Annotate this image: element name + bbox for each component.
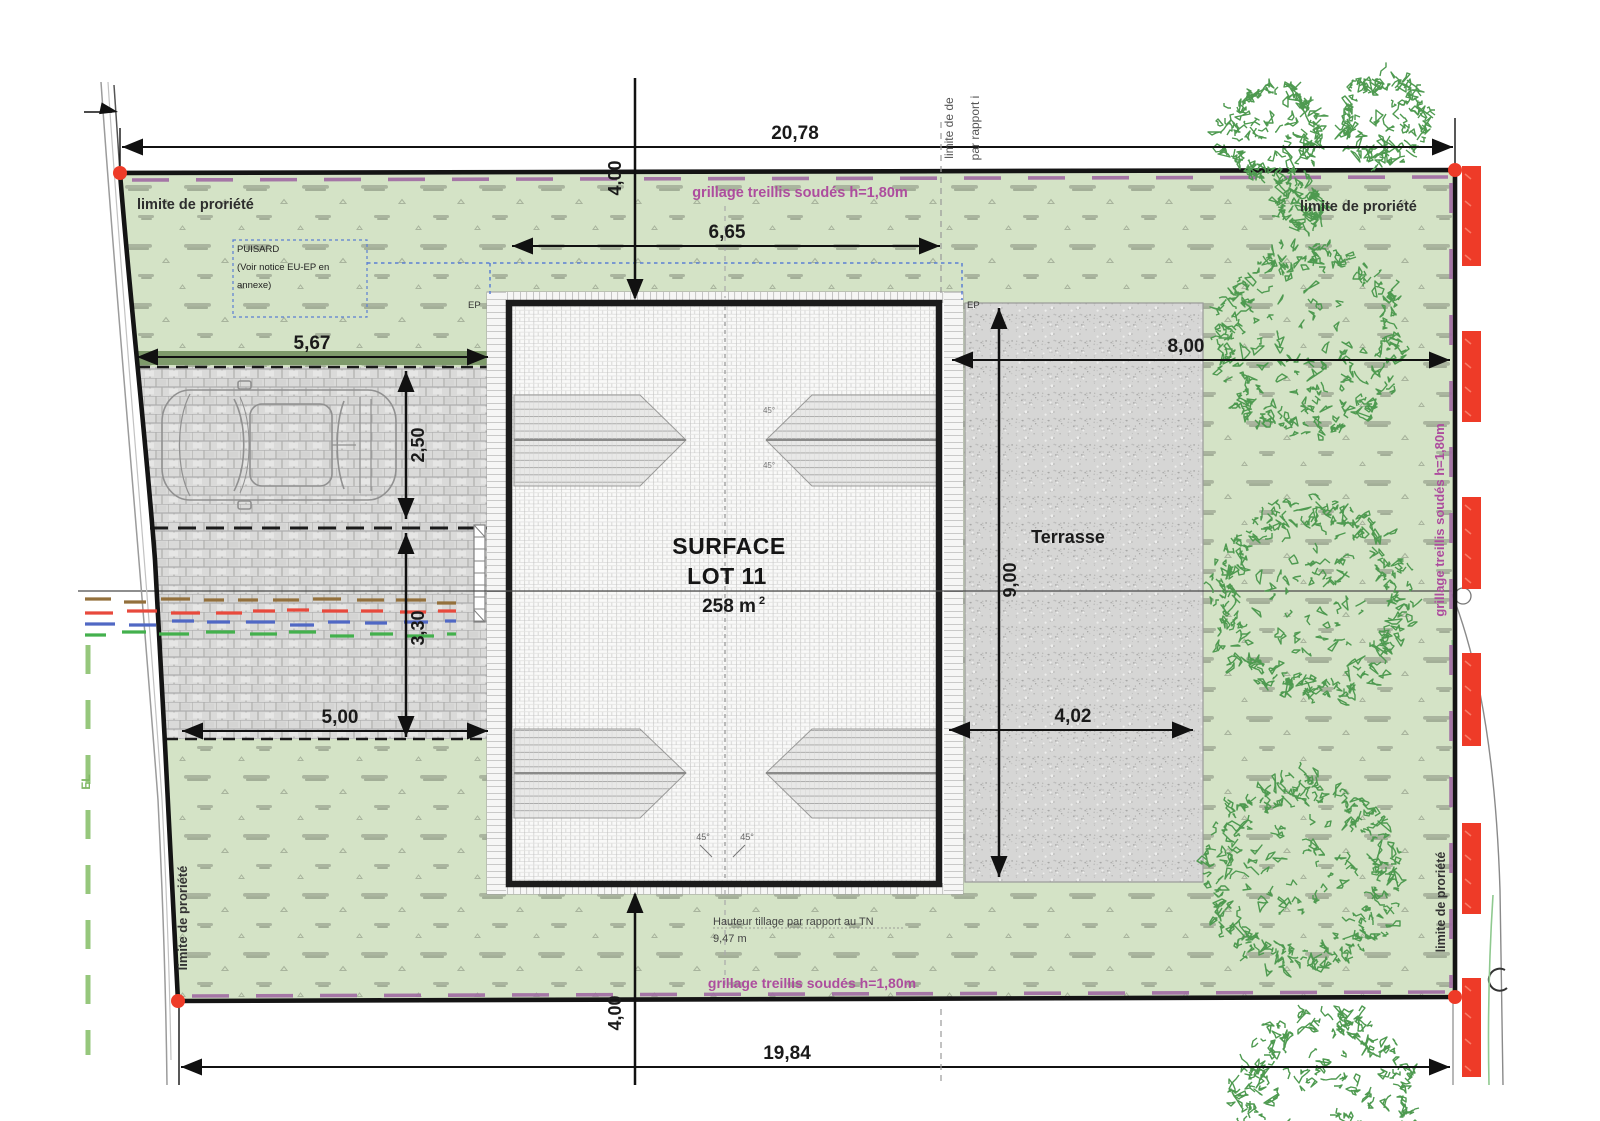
svg-text:9,47 m: 9,47 m bbox=[713, 933, 747, 945]
svg-text:45°: 45° bbox=[696, 832, 710, 842]
svg-text:4,02: 4,02 bbox=[1055, 706, 1092, 727]
svg-text:grillage treillis soudés h=1,8: grillage treillis soudés h=1,80m bbox=[1432, 423, 1447, 616]
svg-text:EP: EP bbox=[468, 300, 481, 311]
svg-text:limite de de: limite de de bbox=[942, 97, 956, 159]
svg-text:2: 2 bbox=[759, 595, 765, 607]
svg-text:PUISARD: PUISARD bbox=[237, 244, 279, 255]
svg-text:(Voir notice EU-EP en: (Voir notice EU-EP en bbox=[237, 262, 329, 273]
svg-text:limite de proriété: limite de proriété bbox=[1300, 199, 1417, 215]
svg-text:Hauteur tillage par rapport au: Hauteur tillage par rapport au TN bbox=[713, 916, 874, 928]
svg-text:3,30: 3,30 bbox=[408, 610, 428, 645]
svg-text:5,67: 5,67 bbox=[294, 333, 331, 354]
svg-text:19,84: 19,84 bbox=[763, 1043, 811, 1064]
svg-text:6,65: 6,65 bbox=[709, 222, 746, 243]
svg-text:8,00: 8,00 bbox=[1168, 336, 1205, 357]
svg-text:45°: 45° bbox=[763, 406, 775, 415]
svg-text:5,00: 5,00 bbox=[322, 707, 359, 728]
svg-text:4,00: 4,00 bbox=[605, 995, 625, 1030]
svg-text:258 m: 258 m bbox=[702, 596, 756, 617]
svg-text:grillage treillis soudés h=1,8: grillage treillis soudés h=1,80m bbox=[692, 185, 908, 201]
svg-text:45°: 45° bbox=[763, 461, 775, 470]
svg-text:EP: EP bbox=[967, 300, 980, 311]
svg-text:limite de proriété: limite de proriété bbox=[1434, 852, 1448, 953]
svg-text:LOT 11: LOT 11 bbox=[687, 563, 767, 589]
svg-text:par rapport i: par rapport i bbox=[968, 96, 982, 161]
svg-text:Terrasse: Terrasse bbox=[1031, 527, 1105, 547]
svg-text:EL: EL bbox=[79, 774, 93, 789]
svg-text:4,00: 4,00 bbox=[605, 160, 625, 195]
svg-text:limite de proriété: limite de proriété bbox=[137, 197, 254, 213]
svg-text:2,50: 2,50 bbox=[408, 427, 428, 462]
svg-text:9,00: 9,00 bbox=[1000, 562, 1020, 597]
svg-text:annexe): annexe) bbox=[237, 280, 271, 291]
svg-text:SURFACE: SURFACE bbox=[672, 533, 785, 559]
svg-text:grillage treillis soudés h=1,8: grillage treillis soudés h=1,80m bbox=[708, 975, 916, 991]
svg-text:limite de proriété: limite de proriété bbox=[175, 866, 190, 971]
svg-text:20,78: 20,78 bbox=[771, 123, 819, 144]
svg-text:45°: 45° bbox=[740, 832, 754, 842]
